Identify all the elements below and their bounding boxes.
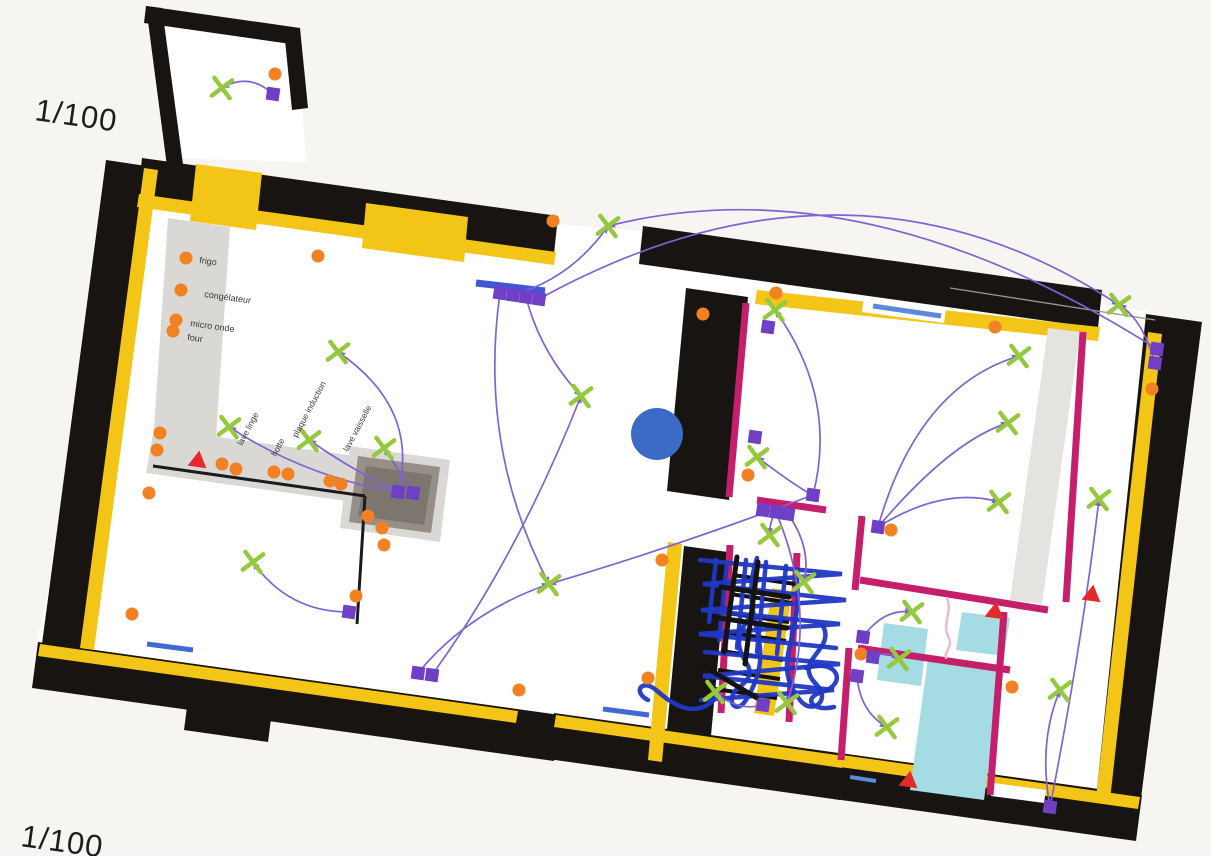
switch <box>856 630 871 645</box>
socket-outlet <box>175 284 188 297</box>
socket-outlet <box>378 539 391 552</box>
switch <box>781 507 796 522</box>
switch <box>1148 356 1163 371</box>
switch <box>342 605 357 620</box>
switch <box>866 650 881 665</box>
switch <box>871 520 886 535</box>
switch <box>406 486 421 501</box>
scanned-floor-plan: frigocongélateurmicro ondefourlave linge… <box>0 0 1211 856</box>
socket-outlet <box>376 522 389 535</box>
switch <box>748 430 763 445</box>
appliance-label: four <box>187 332 204 344</box>
socket-outlet <box>855 648 868 661</box>
switch <box>493 286 508 301</box>
socket-outlet <box>513 684 526 697</box>
socket-outlet <box>885 524 898 537</box>
socket-outlet <box>335 478 348 491</box>
socket-outlet <box>269 68 282 81</box>
socket-outlet <box>282 468 295 481</box>
socket-outlet <box>1006 681 1019 694</box>
switch <box>756 503 771 518</box>
socket-outlet <box>362 510 375 523</box>
socket-outlet <box>770 287 783 300</box>
switch <box>411 666 426 681</box>
switch <box>850 669 865 684</box>
switch <box>506 288 521 303</box>
socket-outlet <box>126 608 139 621</box>
socket-outlet <box>167 325 180 338</box>
socket-outlet <box>151 444 164 457</box>
ceiling-rose <box>631 408 683 460</box>
socket-outlet <box>312 250 325 263</box>
entry-opening <box>190 164 262 230</box>
socket-outlet <box>324 475 337 488</box>
socket-outlet <box>642 672 655 685</box>
socket-outlet <box>742 469 755 482</box>
socket-outlet <box>180 252 193 265</box>
switch <box>761 320 776 335</box>
switch <box>391 485 406 500</box>
socket-outlet <box>230 463 243 476</box>
floor-plan-svg: frigocongélateurmicro ondefourlave linge… <box>0 0 1211 856</box>
socket-outlet <box>350 590 363 603</box>
switch <box>519 290 534 305</box>
switch <box>1043 800 1058 815</box>
socket-outlet <box>154 427 167 440</box>
socket-outlet <box>547 215 560 228</box>
socket-outlet <box>989 321 1002 334</box>
socket-outlet <box>1146 383 1159 396</box>
socket-outlet <box>216 458 229 471</box>
switch <box>266 87 281 102</box>
switch <box>756 698 771 713</box>
socket-outlet <box>143 487 156 500</box>
socket-outlet <box>656 554 669 567</box>
switch <box>806 488 821 503</box>
switch <box>425 668 440 683</box>
switch <box>532 292 547 307</box>
socket-outlet <box>170 314 183 327</box>
socket-outlet <box>697 308 710 321</box>
ceiling-rose-layer <box>631 408 683 460</box>
switch <box>1150 342 1165 357</box>
socket-outlet <box>268 466 281 479</box>
